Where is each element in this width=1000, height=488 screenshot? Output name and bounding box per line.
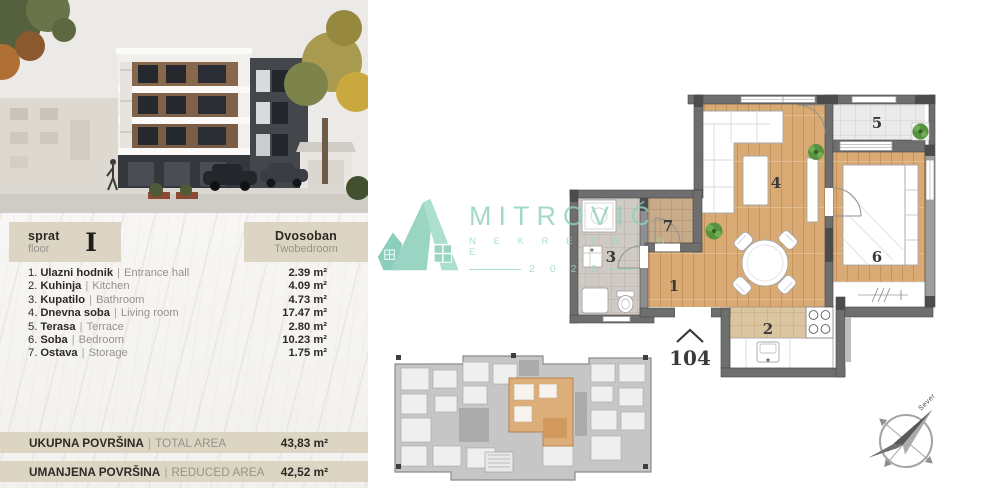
floorplan-canvas: 1 2 3 4 5 6 7 104 <box>370 0 1000 488</box>
dining-table <box>742 240 788 286</box>
room-area: 4.09 m² <box>288 280 327 293</box>
floor-label-sr: sprat <box>28 229 60 243</box>
total-area-row: UKUPNA POVRŠINA|TOTAL AREA 43,83 m² <box>0 432 368 453</box>
label-kitchen: 2 <box>763 320 773 338</box>
label-entrance-hall: 1 <box>669 277 679 295</box>
toilet <box>617 291 634 313</box>
table-header: sprat floor I Dvosoban Twobedroom <box>0 222 368 262</box>
unit-number: 104 <box>669 346 711 370</box>
room-row: 2.Kuhinja|Kitchen 4.09 m² <box>0 280 368 293</box>
building-photo <box>0 0 368 213</box>
label-living-room: 4 <box>771 174 781 192</box>
floor-value: I <box>85 228 97 257</box>
entrance-marker: 104 <box>669 330 711 370</box>
room-area: 17.47 m² <box>282 307 327 320</box>
room-row: 6.Soba|Bedroom 10.23 m² <box>0 334 368 347</box>
reduced-area-value: 42,52 m² <box>281 465 328 479</box>
washing-machine <box>582 200 616 232</box>
bathroom-vent <box>603 317 630 322</box>
room-area: 1.75 m² <box>288 347 327 360</box>
info-panel: sprat floor I Dvosoban Twobedroom 1.Ulaz… <box>0 213 368 488</box>
tv-sideboard <box>807 158 818 222</box>
compass: Sever <box>855 387 959 488</box>
label-bedroom: 6 <box>872 248 882 266</box>
apartment-plan: 1 2 3 4 5 6 7 104 <box>570 95 935 377</box>
plant <box>706 223 723 240</box>
unit-type-cell: Dvosoban Twobedroom <box>244 222 368 262</box>
compass-rose <box>855 387 959 488</box>
key-plan <box>395 353 651 480</box>
unit-type-sr: Dvosoban <box>244 229 368 243</box>
room-row: 5.Terasa|Terrace 2.80 m² <box>0 321 368 334</box>
plant <box>808 144 824 160</box>
room-row: 1.Ulazni hodnik|Entrance hall 2.39 m² <box>0 267 368 280</box>
compass-north-label: Sever <box>917 393 937 413</box>
room-row: 4.Dnevna soba|Living room 17.47 m² <box>0 307 368 320</box>
terrace-window <box>852 97 896 103</box>
room-list: 1.Ulazni hodnik|Entrance hall 2.39 m² 2.… <box>0 267 368 361</box>
entrance-chevron-icon <box>677 330 703 342</box>
brochure-page: sprat floor I Dvosoban Twobedroom 1.Ulaz… <box>0 0 1000 488</box>
label-storage: 7 <box>663 217 673 235</box>
bedroom-door-gap <box>825 188 833 216</box>
stairwell <box>485 452 513 472</box>
label-bathroom: 3 <box>606 248 616 266</box>
north-needle-icon <box>868 398 938 474</box>
bedroom-terrace-window <box>840 142 892 151</box>
room-area: 2.80 m² <box>288 321 327 334</box>
room-area: 2.39 m² <box>288 267 327 280</box>
unit-type-en: Twobedroom <box>244 243 368 255</box>
total-area-value: 43,83 m² <box>281 436 328 450</box>
bedroom-lower-strip <box>833 282 925 307</box>
counter <box>730 338 833 368</box>
entrance-door-gap <box>675 308 711 317</box>
shower-tub <box>582 288 608 313</box>
room-area: 4.73 m² <box>288 294 327 307</box>
floor-cell: sprat floor I <box>9 222 121 262</box>
room-area: 10.23 m² <box>282 334 327 347</box>
storage-door-gap <box>655 244 680 252</box>
room-row: 3.Kupatilo|Bathroom 4.73 m² <box>0 294 368 307</box>
floor-label-en: floor <box>28 243 60 255</box>
label-terrace: 5 <box>872 114 882 132</box>
reduced-area-row: UMANJENA POVRŠINA|REDUCED AREA 42,52 m² <box>0 461 368 482</box>
room-row: 7.Ostava|Storage 1.75 m² <box>0 347 368 360</box>
bathroom-door-gap <box>640 246 648 268</box>
plant <box>913 124 929 140</box>
coffee-table <box>743 156 768 205</box>
